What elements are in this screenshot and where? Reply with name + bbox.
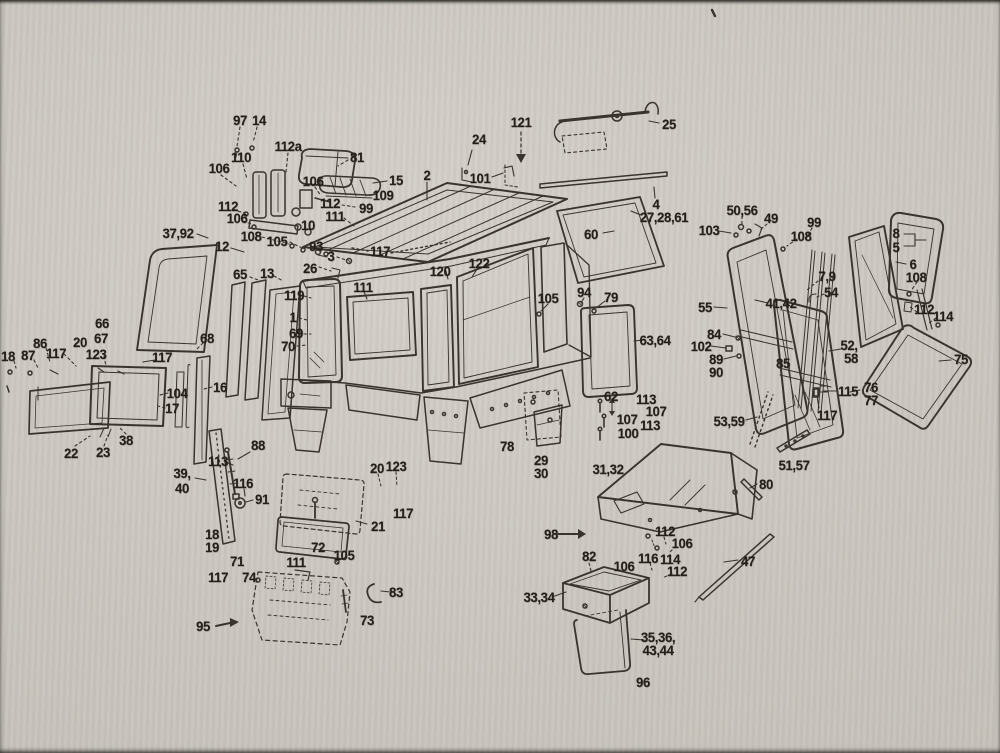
part-label: 110 bbox=[231, 149, 251, 165]
part-label: 49 bbox=[764, 210, 778, 226]
front-windscreen bbox=[281, 279, 342, 452]
part-label: 24 bbox=[472, 131, 486, 147]
part-label: 19 bbox=[205, 539, 219, 555]
small-clips bbox=[7, 368, 124, 392]
part-label: 66 bbox=[95, 315, 109, 331]
part-label: 39, bbox=[173, 465, 190, 481]
exploded-diagram-linework bbox=[0, 0, 1000, 753]
scan-mark bbox=[712, 10, 715, 16]
long-strip bbox=[695, 534, 774, 602]
part-label: 82 bbox=[582, 548, 596, 564]
part-label: 101 bbox=[470, 170, 491, 186]
part-label: 21 bbox=[371, 518, 385, 534]
handle-assembly bbox=[554, 102, 658, 153]
part-label: 50,56 bbox=[726, 202, 757, 218]
part-label: 67 bbox=[94, 330, 108, 346]
part-label: 16 bbox=[213, 379, 227, 395]
part-label: 119 bbox=[284, 287, 304, 303]
part-label: 12 bbox=[215, 238, 229, 254]
part-label: 117 bbox=[208, 569, 228, 585]
part-label: 112 bbox=[667, 563, 687, 579]
part-label: 55 bbox=[698, 299, 712, 315]
part-label: 123 bbox=[386, 458, 407, 474]
part-label: 75 bbox=[954, 351, 968, 367]
part-label: 37,92 bbox=[162, 225, 193, 241]
part-label: 113 bbox=[208, 453, 228, 469]
part-label: 117 bbox=[370, 243, 390, 259]
part-label: 54 bbox=[824, 284, 838, 300]
part-label: 18 bbox=[1, 348, 15, 364]
part-label: 5 bbox=[893, 239, 900, 255]
part-label: 47 bbox=[741, 553, 755, 569]
part-label: 73 bbox=[360, 612, 374, 628]
part-label: 108 bbox=[906, 269, 927, 285]
part-label: 94 bbox=[577, 284, 591, 300]
toolbox bbox=[563, 567, 649, 623]
front-door-frame bbox=[728, 235, 808, 434]
part-label: 15 bbox=[389, 172, 403, 188]
part-label: 80 bbox=[759, 476, 773, 492]
part-label: 117 bbox=[817, 407, 837, 423]
part-label: 33,34 bbox=[523, 589, 554, 605]
part-label: 95 bbox=[196, 618, 210, 634]
hook bbox=[367, 584, 381, 602]
short-strip bbox=[733, 479, 762, 500]
part-label: 68 bbox=[200, 330, 214, 346]
part-label: 81 bbox=[350, 149, 364, 165]
part-label: 10 bbox=[301, 217, 315, 233]
part-label: 1 bbox=[290, 309, 297, 325]
part-label: 117 bbox=[46, 345, 66, 361]
part-label: 63,64 bbox=[639, 332, 670, 348]
part-label: 14 bbox=[252, 112, 266, 128]
part-label: 100 bbox=[618, 425, 639, 441]
part-label: 71 bbox=[230, 553, 244, 569]
part-label: 65 bbox=[233, 266, 247, 282]
part-label: 72 bbox=[311, 539, 325, 555]
part-label: 62 bbox=[604, 388, 618, 404]
part-label: 51,57 bbox=[778, 457, 809, 473]
part-label: 98 bbox=[544, 526, 558, 542]
part-label: 83 bbox=[389, 584, 403, 600]
part-label: 7,9 bbox=[818, 268, 835, 284]
part-label: 23 bbox=[96, 444, 110, 460]
part-label: 43,44 bbox=[642, 642, 673, 658]
part-label: 115 bbox=[838, 383, 858, 399]
part-label: 108 bbox=[791, 228, 812, 244]
part-label: 111 bbox=[325, 208, 344, 224]
part-label: 38 bbox=[119, 432, 133, 448]
part-label: 117 bbox=[152, 349, 172, 365]
part-label: 114 bbox=[933, 308, 953, 324]
part-label: 13 bbox=[260, 265, 274, 281]
part-label: 105 bbox=[538, 290, 559, 306]
part-label: 106 bbox=[209, 160, 230, 176]
bracket-hardware bbox=[524, 390, 615, 440]
part-label: 111 bbox=[353, 279, 372, 295]
part-label: 40 bbox=[175, 480, 189, 496]
part-label: 31,32 bbox=[592, 461, 623, 477]
part-label: 26 bbox=[303, 260, 317, 276]
floor-mat bbox=[252, 572, 350, 645]
part-label: 103 bbox=[699, 222, 720, 238]
part-label: 111 bbox=[286, 554, 305, 570]
part-label: 2 bbox=[424, 167, 431, 183]
side-window-frame bbox=[578, 302, 638, 398]
part-label: 105 bbox=[334, 547, 355, 563]
scanned-parts-diagram-page: 9714112a11010681106151091129911111210610… bbox=[0, 0, 1000, 753]
part-label: 25 bbox=[662, 116, 676, 132]
part-label: 22 bbox=[64, 445, 78, 461]
part-label: 96 bbox=[636, 674, 650, 690]
part-label: 97 bbox=[233, 112, 247, 128]
part-label: 123 bbox=[86, 346, 107, 362]
part-label: 106 bbox=[303, 173, 324, 189]
part-label: 116 bbox=[233, 475, 253, 491]
part-label: 3 bbox=[328, 248, 335, 264]
part-label: 77 bbox=[864, 392, 878, 408]
part-label: 117 bbox=[393, 505, 413, 521]
part-label: 91 bbox=[255, 491, 269, 507]
part-label: 53,59 bbox=[713, 413, 744, 429]
part-label: 93 bbox=[309, 238, 323, 254]
part-label: 104 bbox=[167, 385, 188, 401]
part-label: 60 bbox=[584, 226, 598, 242]
part-label: 79 bbox=[604, 289, 618, 305]
part-label: 58 bbox=[844, 350, 858, 366]
part-label: 70 bbox=[281, 338, 295, 354]
bucket bbox=[574, 610, 630, 674]
lower-glass bbox=[863, 325, 971, 429]
part-label: 99 bbox=[359, 200, 373, 216]
part-label: 112a bbox=[274, 138, 301, 154]
part-label: 90 bbox=[709, 364, 723, 380]
part-label: 106 bbox=[614, 558, 635, 574]
part-label: 121 bbox=[511, 114, 532, 130]
part-label: 116 bbox=[638, 550, 658, 566]
part-label: 113 bbox=[640, 417, 660, 433]
part-label: 112 bbox=[914, 301, 934, 317]
trim-strip bbox=[540, 172, 667, 188]
part-label: 17 bbox=[165, 400, 179, 416]
part-label: 87 bbox=[21, 347, 35, 363]
part-label: 106 bbox=[227, 210, 248, 226]
part-label: 108 bbox=[241, 228, 262, 244]
part-label: 106 bbox=[672, 535, 693, 551]
part-label: 85 bbox=[776, 355, 790, 371]
part-label: 88 bbox=[251, 437, 265, 453]
part-label: 27,28,61 bbox=[640, 209, 688, 225]
part-label: 20 bbox=[370, 460, 384, 476]
part-label: 105 bbox=[267, 233, 288, 249]
part-label: 109 bbox=[373, 187, 394, 203]
part-label: 41,42 bbox=[765, 295, 796, 311]
part-label: 74 bbox=[242, 569, 256, 585]
part-label: 78 bbox=[500, 438, 514, 454]
part-label: 30 bbox=[534, 465, 548, 481]
part-label: 120 bbox=[430, 263, 451, 279]
part-label: 122 bbox=[469, 255, 490, 271]
